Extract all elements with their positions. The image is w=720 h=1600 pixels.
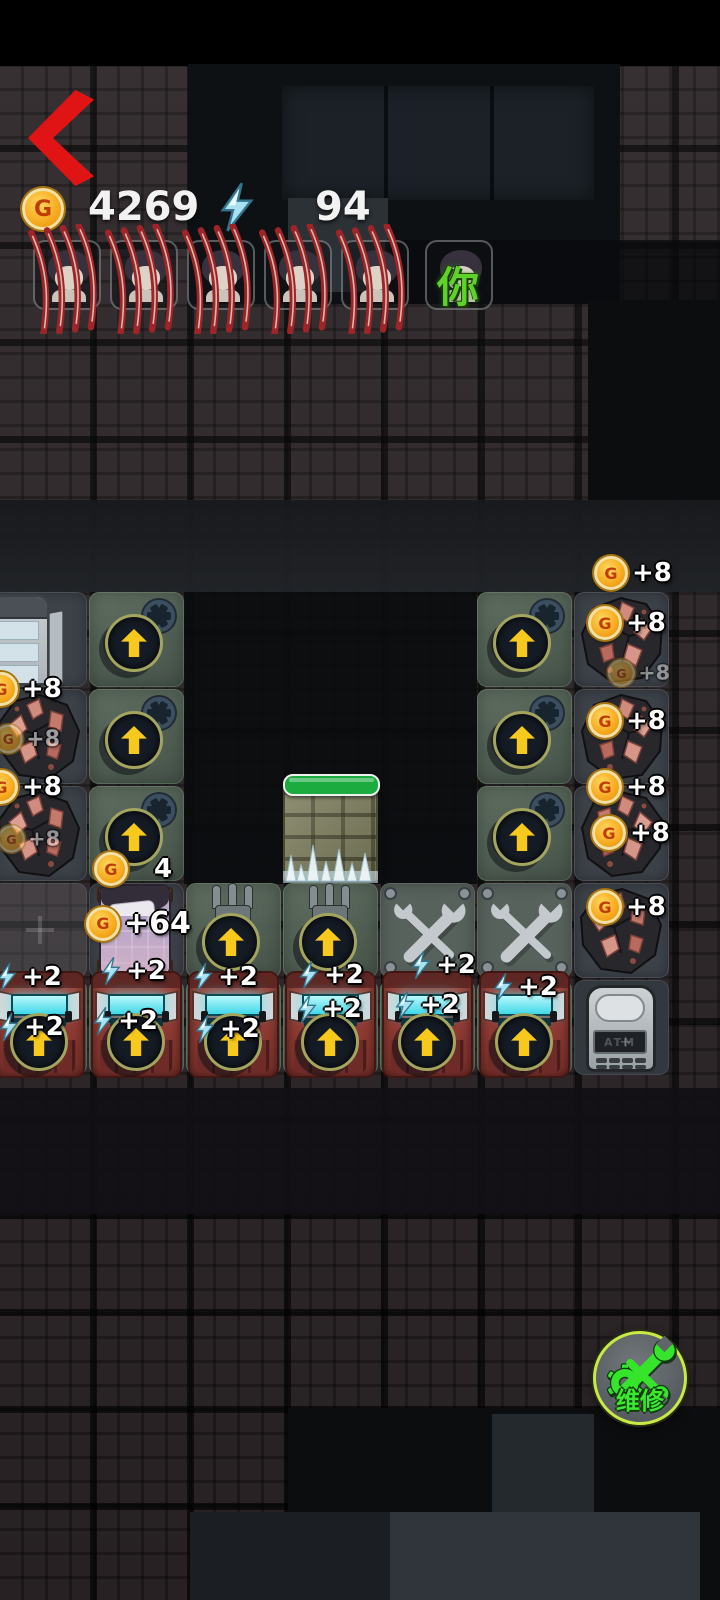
party-slot-1[interactable] [33, 240, 101, 310]
energy-reward-value: +2 [436, 950, 476, 980]
coin-reward-label: G +8 [588, 890, 666, 924]
coin-reward-value: +8 [626, 706, 666, 736]
coin-icon: G [588, 606, 622, 640]
coin-symbol: G [0, 778, 8, 797]
coin-symbol: G [598, 614, 611, 633]
atm-screen: + ATM [593, 1030, 647, 1054]
coin-reward-label: G +8 [608, 659, 670, 686]
energy-reward-value: +2 [218, 962, 258, 992]
coin-icon: G [588, 890, 622, 924]
coin-icon: G [588, 770, 622, 804]
energy-reward-value: +2 [324, 960, 364, 990]
hero-portrait [277, 250, 323, 302]
coin-symbol: G [602, 824, 615, 843]
upgrade-button[interactable] [105, 614, 163, 672]
tile-upgrade-r1c6[interactable] [477, 592, 572, 687]
energy-reward-label: +2 [194, 1014, 260, 1044]
party-slot-6[interactable]: 你 [425, 240, 493, 310]
coin-reward-label: G +8 [0, 825, 60, 852]
energy-reward-label: +2 [410, 950, 476, 980]
coin-symbol: G [616, 665, 627, 680]
coin-reward-label: G +8 [594, 556, 672, 590]
coin-reward-value: +8 [626, 608, 666, 638]
coin-reward-label: G +8 [0, 672, 62, 706]
energy-bolt-icon [296, 994, 318, 1024]
coin-reward-value: +8 [626, 892, 666, 922]
coin-symbol: G [604, 564, 617, 583]
coin-symbol: G [3, 731, 14, 747]
energy-reward-label: +2 [394, 990, 460, 1020]
energy-reward-value: +2 [118, 1006, 158, 1036]
upgrade-button[interactable] [105, 711, 163, 769]
energy-reward-label: +2 [100, 956, 166, 986]
crossed-wrench-icon [481, 887, 568, 974]
coin-symbol: G [598, 712, 611, 731]
coin-reward-label: G +8 [588, 704, 666, 738]
upgrade-button[interactable] [398, 1013, 456, 1071]
energy-reward-label: +2 [0, 1012, 64, 1042]
coin-reward-label: G +8 [0, 770, 62, 804]
coin-reward-value: +8 [22, 674, 62, 704]
gray-patch-bottom-left [190, 1512, 390, 1600]
status-bar-black [0, 0, 720, 66]
energy-reward-value: +2 [420, 990, 460, 1020]
energy-bolt-icon [492, 972, 514, 1002]
coin-symbol: G [598, 778, 611, 797]
coin-reward-value: +64 [124, 906, 191, 941]
coin-icon: G [0, 825, 25, 852]
dark-room-panel [282, 86, 594, 200]
up-arrow-icon [121, 726, 147, 754]
coin-reward-value: +8 [26, 726, 60, 752]
coin-reward-value: +8 [630, 818, 670, 848]
coin-reward-label: G +8 [588, 606, 666, 640]
coin-symbol: G [34, 197, 52, 222]
up-arrow-icon [317, 1028, 343, 1056]
tile-upgrade-r1c2[interactable] [89, 592, 184, 687]
upgrade-button[interactable] [493, 711, 551, 769]
upgrade-button[interactable] [495, 1013, 553, 1071]
coin-icon: G [592, 816, 626, 850]
atm-machine-icon: + ATM [586, 985, 656, 1072]
energy-reward-value: +2 [24, 1012, 64, 1042]
energy-reward-value: +2 [322, 994, 362, 1024]
coin-reward-label: G +64 [86, 906, 191, 941]
energy-bolt-icon [394, 990, 416, 1020]
coin-reward-label: G +8 [592, 816, 670, 850]
repair-button-label: 维修 [596, 1381, 684, 1416]
energy-bolt-icon [92, 1006, 114, 1036]
coin-icon: G [0, 672, 18, 706]
coin-icon: G [86, 907, 120, 941]
tile-upgrade-r3c6[interactable] [477, 786, 572, 881]
atm-screen-text: ATM [604, 1036, 636, 1049]
coin-reward-value: +8 [626, 772, 666, 802]
party-slot-2[interactable] [110, 240, 178, 310]
energy-bolt-icon [410, 950, 432, 980]
energy-bolt-icon [194, 1014, 216, 1044]
coin-value: 4269 [88, 184, 199, 230]
energy-reward-label: +2 [296, 994, 362, 1024]
energy-icon [218, 180, 256, 234]
tile-wrench-r4c6[interactable] [477, 883, 572, 978]
hero-portrait [123, 250, 169, 302]
atm-keypad [596, 1058, 646, 1069]
tile-upgrade-r2c2[interactable] [89, 689, 184, 784]
ice-crystals-icon [283, 841, 378, 883]
dark-cube-bottom [492, 1414, 594, 1514]
coin-reward-value: +8 [632, 558, 672, 588]
coin-reward-value: +8 [28, 827, 60, 851]
energy-bolt-icon [100, 956, 122, 986]
energy-reward-label: +2 [492, 972, 558, 1002]
back-button[interactable] [28, 90, 94, 186]
coin-icon: G [94, 852, 128, 886]
energy-reward-label: +2 [92, 1006, 158, 1036]
dark-area-right [588, 300, 720, 500]
energy-reward-label: +2 [0, 962, 62, 992]
coin-icon: G [0, 770, 18, 804]
coin-reward-label: G 4 [94, 852, 172, 886]
dark-band-below-board [0, 1088, 720, 1214]
energy-bolt-icon [298, 960, 320, 990]
coin-reward-value: +8 [22, 772, 62, 802]
coin-icon: G [22, 188, 64, 230]
coin-icon: G [594, 556, 628, 590]
tile-atm-r5c7[interactable]: + ATM [574, 980, 669, 1075]
coin-symbol: G [6, 831, 17, 846]
energy-bolt-icon [0, 962, 18, 992]
energy-reward-value: +2 [220, 1014, 260, 1044]
coin-icon: G [588, 704, 622, 738]
coin-reward-value: +8 [638, 661, 670, 685]
game-screen: G 4269 94 你 [0, 0, 720, 1600]
hp-bar [283, 774, 380, 796]
party-slot-3[interactable] [187, 240, 255, 310]
energy-bolt-icon [0, 1012, 20, 1042]
energy-reward-label: +2 [298, 960, 364, 990]
up-arrow-icon [509, 629, 535, 657]
repair-button[interactable]: 维修 [593, 1331, 687, 1425]
up-arrow-icon [414, 1028, 440, 1056]
energy-reward-value: +2 [126, 956, 166, 986]
up-arrow-icon [315, 928, 341, 956]
coin-reward-label: G +8 [0, 725, 60, 754]
hero-status-overlay: 你 [437, 254, 479, 315]
energy-reward-value: +2 [518, 972, 558, 1002]
up-arrow-icon [121, 823, 147, 851]
party-slot-4[interactable] [264, 240, 332, 310]
up-arrow-icon [509, 726, 535, 754]
coin-icon: G [0, 725, 23, 754]
up-arrow-icon [121, 629, 147, 657]
coin-symbol: G [598, 898, 611, 917]
upgrade-button[interactable] [493, 808, 551, 866]
coin-symbol: G [96, 914, 109, 933]
hero-portrait [354, 250, 400, 302]
energy-reward-label: +2 [192, 962, 258, 992]
up-arrow-icon [511, 1028, 537, 1056]
party-slot-5[interactable] [341, 240, 409, 310]
upgrade-button[interactable] [493, 614, 551, 672]
furnace-machine-icon [382, 971, 473, 1078]
coin-symbol: G [0, 680, 8, 699]
hero-portrait [200, 250, 246, 302]
up-arrow-icon [509, 823, 535, 851]
coin-icon: G [608, 659, 635, 686]
hero-portrait [46, 250, 92, 302]
tile-upgrade-r2c6[interactable] [477, 689, 572, 784]
coin-reward-label: G +8 [588, 770, 666, 804]
up-arrow-icon [218, 928, 244, 956]
gray-patch-bottom [388, 1512, 700, 1600]
coin-symbol: G [104, 860, 117, 879]
energy-value: 94 [315, 184, 371, 230]
back-arrow-icon [28, 90, 94, 186]
tile-wall-r3c4[interactable] [283, 786, 378, 881]
coin-reward-value: 4 [154, 854, 172, 884]
energy-reward-value: +2 [22, 962, 62, 992]
energy-bolt-icon [192, 962, 214, 992]
